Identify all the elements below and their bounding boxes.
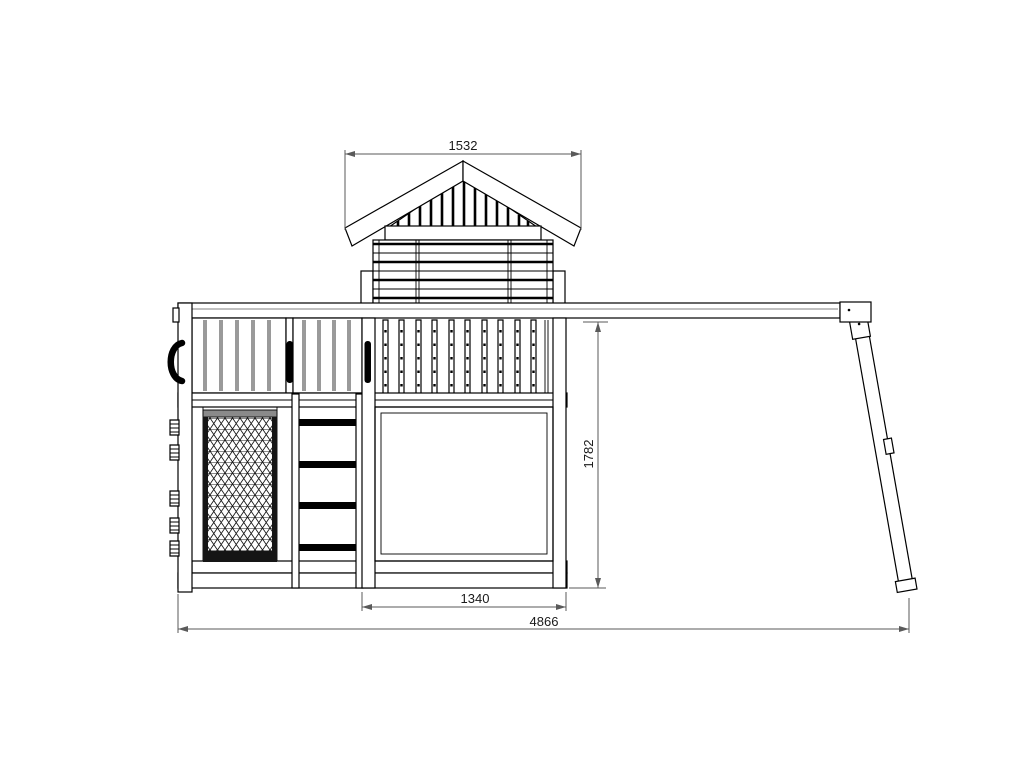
roof-trim-band <box>385 226 541 240</box>
net-bottom-bar <box>203 551 277 562</box>
grab-handle-right <box>365 341 372 383</box>
roof <box>345 161 581 246</box>
bracket-screw-beam <box>848 309 851 312</box>
dim-overall-width: 4866 <box>530 614 559 629</box>
swing-support <box>840 302 918 592</box>
deck-and-beam <box>178 303 840 318</box>
elevation-drawing: 1532 1782 1340 4866 <box>0 0 1024 768</box>
drawing-canvas: 1532 1782 1340 4866 <box>0 0 1024 768</box>
climbing-net <box>203 417 277 554</box>
post-tower-right <box>553 318 566 588</box>
post-left-cap <box>173 308 179 322</box>
dim-roof-width: 1532 <box>449 138 478 153</box>
balusters <box>383 320 536 394</box>
lower-bay-inner <box>381 413 547 554</box>
baluster-holes <box>386 330 534 392</box>
net-top-bar <box>203 410 277 417</box>
base-band-upper <box>192 561 567 573</box>
deck-beam <box>178 303 840 318</box>
climbing-net-bay <box>203 407 277 562</box>
lower-bay-outer <box>375 407 553 561</box>
lower-bay <box>375 407 553 561</box>
net-edge-right <box>272 417 277 554</box>
dim-deck-height: 1782 <box>581 440 596 469</box>
balustrade-end-trim <box>545 320 548 393</box>
net-edge-left <box>203 417 208 554</box>
beam-end-bracket <box>840 302 871 322</box>
ladder-rungs <box>299 419 356 551</box>
ladder-rail-left <box>292 394 299 588</box>
playhouse <box>361 240 565 308</box>
dim-lower-bay-width: 1340 <box>461 591 490 606</box>
ladder <box>292 394 363 588</box>
grab-handle-left <box>287 341 294 383</box>
support-leg <box>851 311 913 587</box>
leg-mid-bracket <box>884 438 894 454</box>
